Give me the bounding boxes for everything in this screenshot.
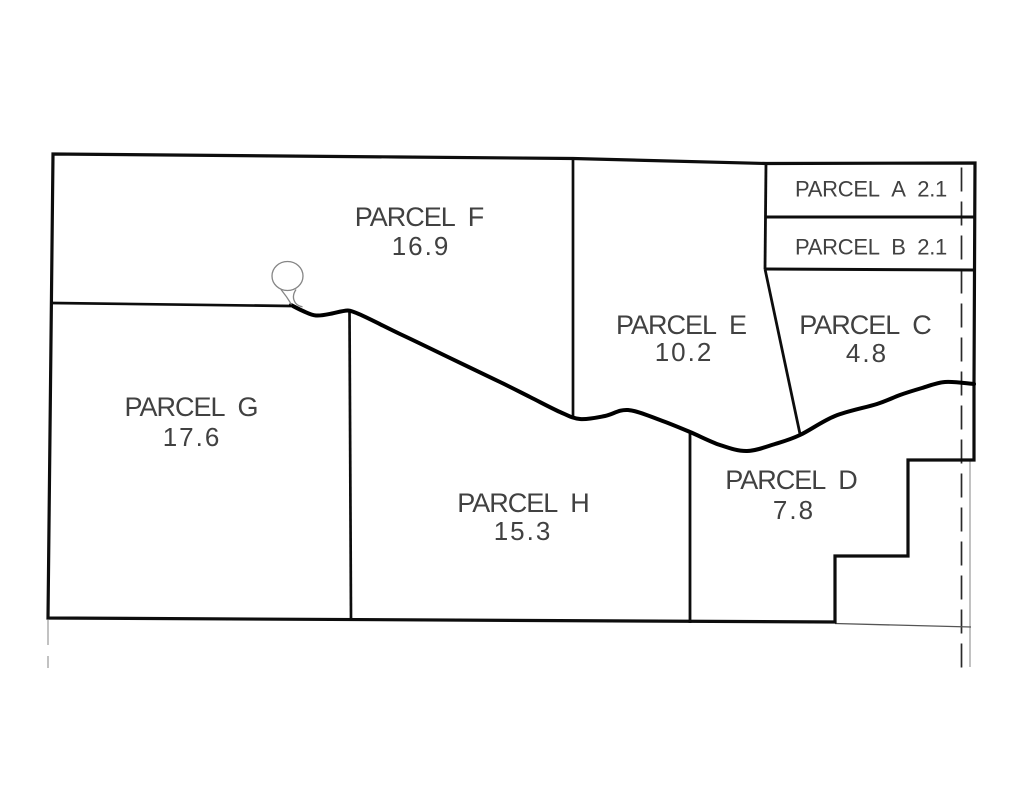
svg-text:PARCEL F: PARCEL F [355,202,484,232]
svg-text:PARCEL G: PARCEL G [124,392,257,422]
svg-text:PARCEL C: PARCEL C [799,310,931,340]
svg-text:7.8: 7.8 [773,495,815,525]
svg-text:PARCEL D: PARCEL D [725,465,857,495]
svg-text:4.8: 4.8 [846,338,888,368]
svg-text:PARCEL A 2.1: PARCEL A 2.1 [795,177,947,202]
svg-text:16.9: 16.9 [392,231,451,261]
svg-text:10.2: 10.2 [655,337,714,367]
svg-text:17.6: 17.6 [163,422,222,452]
svg-text:15.3: 15.3 [494,516,553,546]
svg-text:PARCEL H: PARCEL H [457,488,589,518]
svg-text:PARCEL B 2.1: PARCEL B 2.1 [795,235,947,260]
svg-text:PARCEL E: PARCEL E [616,310,746,340]
